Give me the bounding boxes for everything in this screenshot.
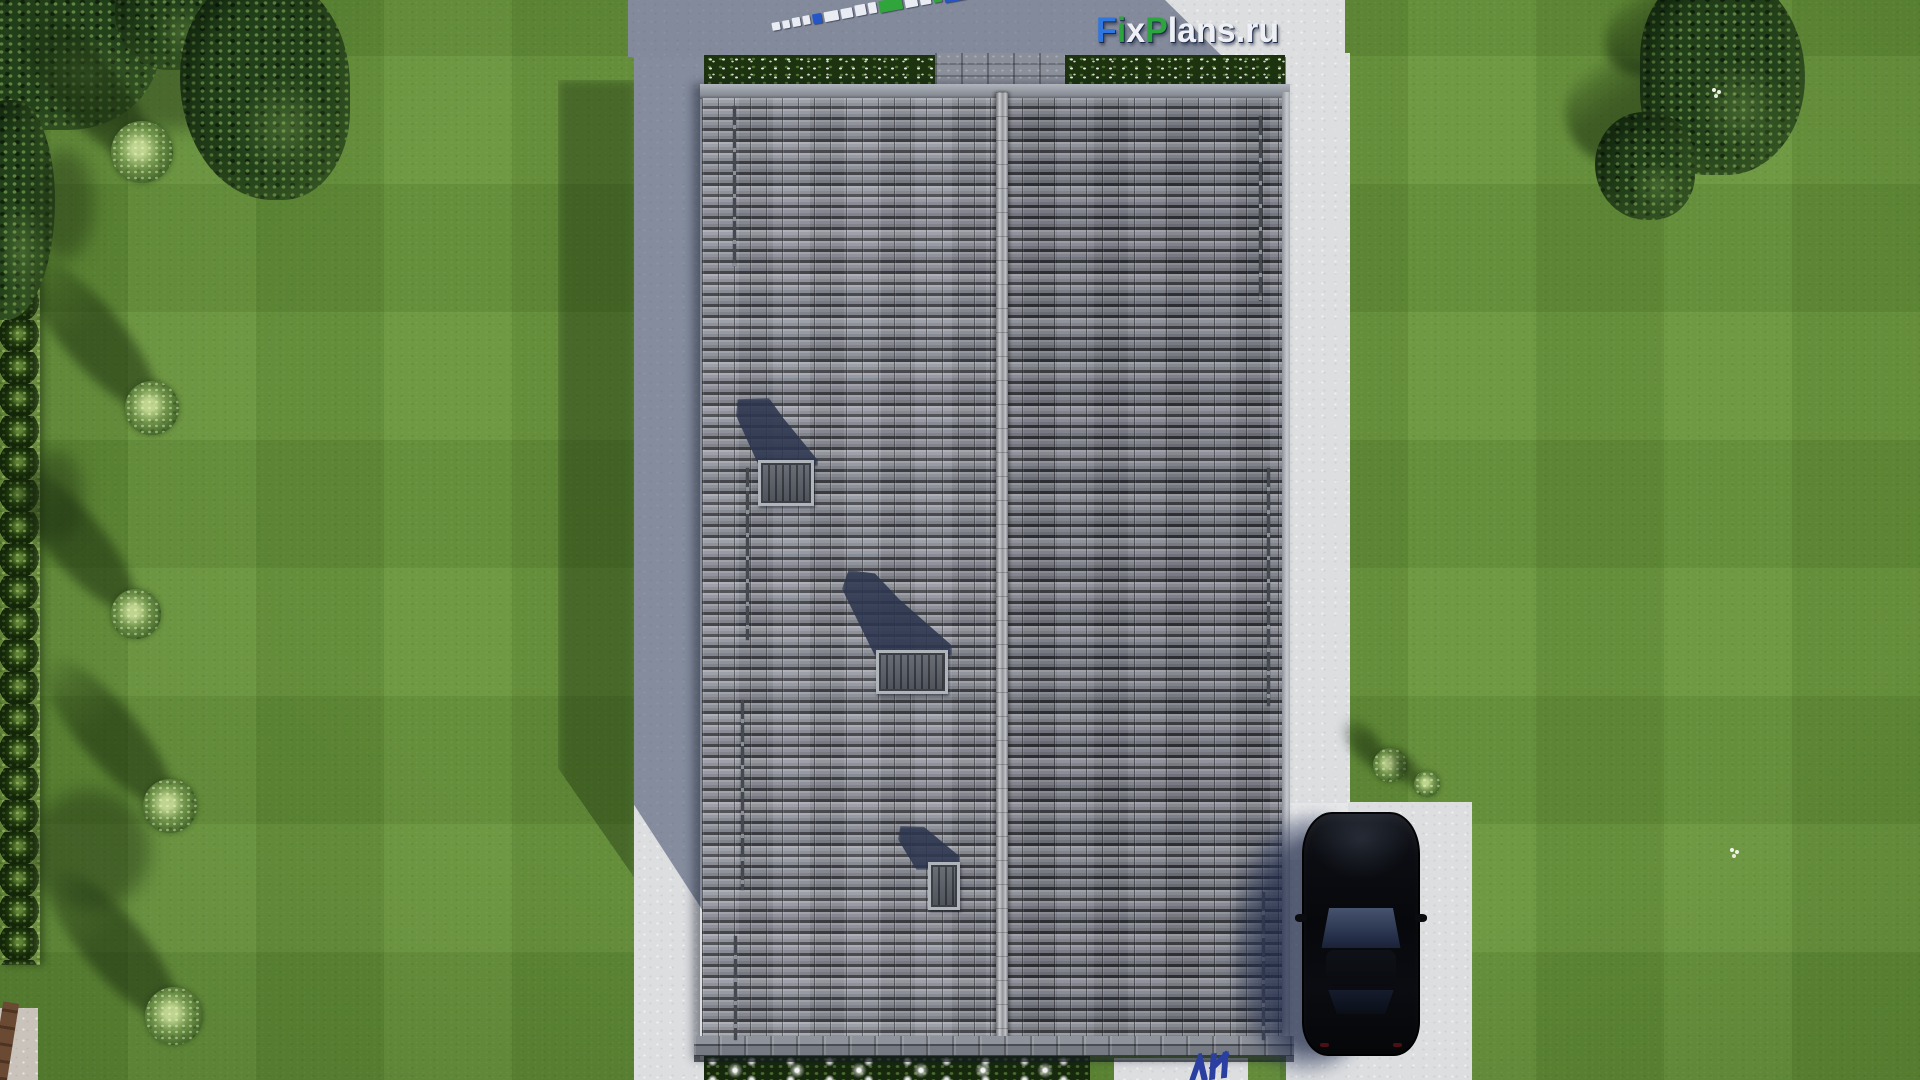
skylight-window	[928, 862, 960, 910]
watermark-3d-letters	[1184, 1049, 1235, 1080]
bush	[111, 589, 161, 639]
parked-car	[1302, 812, 1420, 1056]
watermark-block	[802, 15, 811, 25]
watermark-block	[854, 4, 867, 17]
logo-letter: u	[1258, 11, 1279, 50]
car-taillight-left	[1320, 1043, 1329, 1047]
bush	[111, 121, 173, 183]
car-roof-glass	[1326, 950, 1396, 986]
house-shadow-on-grass	[558, 80, 636, 880]
flowerbed-top-right	[1065, 55, 1285, 87]
logo-letter: i	[1117, 11, 1126, 50]
bush	[1414, 771, 1440, 797]
fixplans-logo: FixPlans.ru	[1096, 11, 1279, 51]
watermark-block	[867, 2, 877, 14]
bush	[145, 987, 203, 1045]
flowerbed-top-left	[704, 55, 935, 87]
car-windshield	[1314, 908, 1408, 948]
logo-letter: P	[1145, 11, 1168, 50]
watermark-block	[792, 17, 802, 27]
car-taillight-right	[1393, 1043, 1402, 1047]
roof-fascia-top	[700, 84, 1290, 99]
house-roof	[700, 84, 1290, 1060]
site-render-scene: FixPlans.ru	[0, 0, 1920, 1080]
logo-letter: s	[1217, 11, 1236, 50]
logo-letter: r	[1245, 11, 1258, 50]
snow-rail	[734, 936, 737, 1040]
logo-letter: n	[1196, 11, 1217, 50]
roof-tiles	[702, 98, 1282, 1036]
white-marker	[1730, 848, 1734, 852]
snow-rail	[746, 468, 749, 640]
bush	[125, 381, 179, 435]
skylight-window	[758, 460, 814, 506]
logo-letter: x	[1126, 11, 1145, 50]
snow-rail	[1259, 116, 1262, 301]
right-path	[1286, 53, 1350, 805]
watermark-block	[782, 19, 791, 28]
white-flower-spot	[1712, 88, 1716, 92]
logo-letter: .	[1236, 11, 1245, 50]
tree-canopy	[1595, 112, 1695, 220]
watermark-block	[932, 0, 942, 3]
watermark-block	[771, 21, 780, 30]
logo-letter: l	[1168, 11, 1177, 50]
watermark-block	[904, 0, 919, 8]
snow-rail	[1267, 468, 1270, 706]
car-mirror-right	[1415, 914, 1427, 922]
watermark-block	[812, 12, 823, 23]
hedge-shadow	[28, 450, 83, 540]
hedge-shadow	[34, 150, 94, 260]
logo-letter: a	[1177, 11, 1196, 50]
logo-letter: F	[1096, 11, 1117, 50]
watermark-block	[823, 9, 839, 21]
watermark-block	[878, 0, 903, 13]
snow-rail	[741, 700, 744, 890]
snow-rail	[733, 106, 736, 266]
bush	[143, 779, 197, 833]
roof-ridge	[996, 92, 1008, 1040]
skylight-window	[876, 650, 948, 694]
watermark-block	[919, 0, 932, 6]
car-mirror-left	[1295, 914, 1307, 922]
watermark-block	[840, 7, 853, 19]
